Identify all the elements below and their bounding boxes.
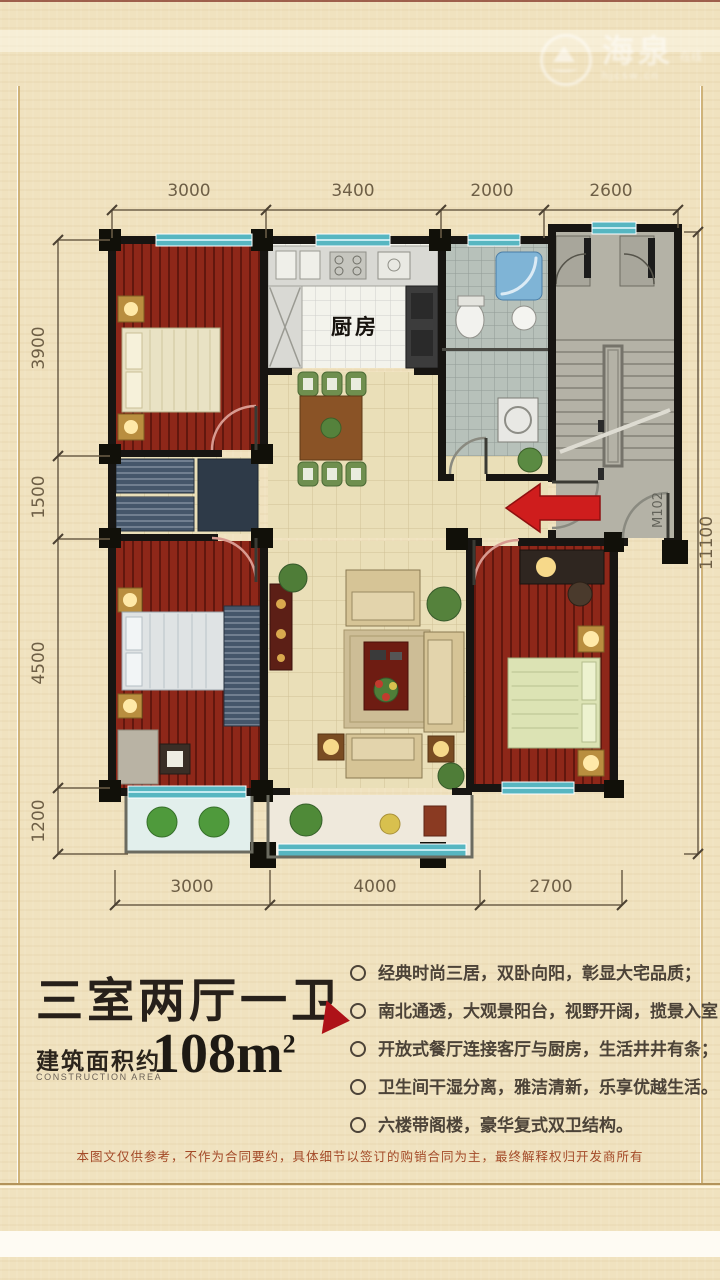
chair xyxy=(568,582,592,606)
kitchen-label: 厨房 xyxy=(331,315,379,339)
feature-item: 开放式餐厅连接客厅与厨房，生活井井有条； xyxy=(350,1038,720,1062)
disclaimer-text: 本图文仅供参考，不作为合同要约，具体细节以签订的购销合同为主，最终解释权归开发商… xyxy=(0,1146,720,1165)
feature-item: 卫生间干湿分离，雅洁清新，乐享优越生活。 xyxy=(350,1076,720,1100)
dim-left-4: 1200 xyxy=(29,799,49,842)
bullet-ring-icon xyxy=(350,1117,366,1133)
plant-icon xyxy=(438,763,464,789)
bullet-ring-icon xyxy=(350,1079,366,1095)
plant-icon xyxy=(279,564,307,592)
dim-left-2: 1500 xyxy=(29,475,49,518)
entry-door-label: M102 xyxy=(651,492,666,528)
balcony1-floor xyxy=(126,796,252,852)
feature-item: 六楼带阁楼，豪华复式双卫结构。 xyxy=(350,1114,720,1138)
red-triangle-icon xyxy=(322,1000,352,1037)
bottom-white-line xyxy=(0,1186,720,1188)
bottom-white-band xyxy=(0,1231,720,1257)
bottom-gold-line xyxy=(0,1183,720,1185)
dim-left-3: 4500 xyxy=(29,641,49,684)
feature-item: 经典时尚三居，双卧向阳，彰显大宅品质； xyxy=(350,962,720,986)
dim-top-3: 2000 xyxy=(470,181,513,201)
bullet-ring-icon xyxy=(350,1041,366,1057)
plant-icon xyxy=(199,807,229,837)
wardrobe xyxy=(116,497,194,531)
dim-right-1: 11100 xyxy=(697,516,717,570)
balcony-chair xyxy=(424,806,446,836)
desk xyxy=(520,550,604,584)
dim-bottom-2: 4000 xyxy=(353,877,396,897)
plant-icon xyxy=(290,804,322,836)
bullet-ring-icon xyxy=(350,1003,366,1019)
plant-icon xyxy=(427,587,461,621)
dim-left-1: 3900 xyxy=(29,326,49,369)
sink xyxy=(512,306,536,330)
cabinet xyxy=(198,459,258,531)
area-label: 建筑面积约 xyxy=(36,1042,161,1076)
area-label-en: CONSTRUCTION AREA xyxy=(36,1072,162,1082)
plant-icon xyxy=(518,448,542,472)
dim-top-4: 2600 xyxy=(589,181,632,201)
dim-top-1: 3000 xyxy=(167,181,210,201)
feature-item: 南北通透，大观景阳台，视野开阔，揽景入室； xyxy=(350,1000,720,1024)
balcony-table xyxy=(380,814,400,834)
wardrobe xyxy=(224,606,260,726)
wardrobe xyxy=(116,459,194,493)
area-value: 108m2 xyxy=(152,1022,296,1086)
toilet xyxy=(456,302,484,338)
feature-list: 经典时尚三居，双卧向阳，彰显大宅品质； 南北通透，大观景阳台，视野开阔，揽景入室… xyxy=(350,962,720,1152)
rug xyxy=(118,730,158,784)
dining-set xyxy=(298,372,366,486)
bullet-ring-icon xyxy=(350,965,366,981)
page-title: 三室两厅一卫 xyxy=(36,962,342,1031)
dim-top-2: 3400 xyxy=(331,181,374,201)
dim-bottom-3: 2700 xyxy=(529,877,572,897)
dim-bottom-1: 3000 xyxy=(170,877,213,897)
plant-icon xyxy=(147,807,177,837)
